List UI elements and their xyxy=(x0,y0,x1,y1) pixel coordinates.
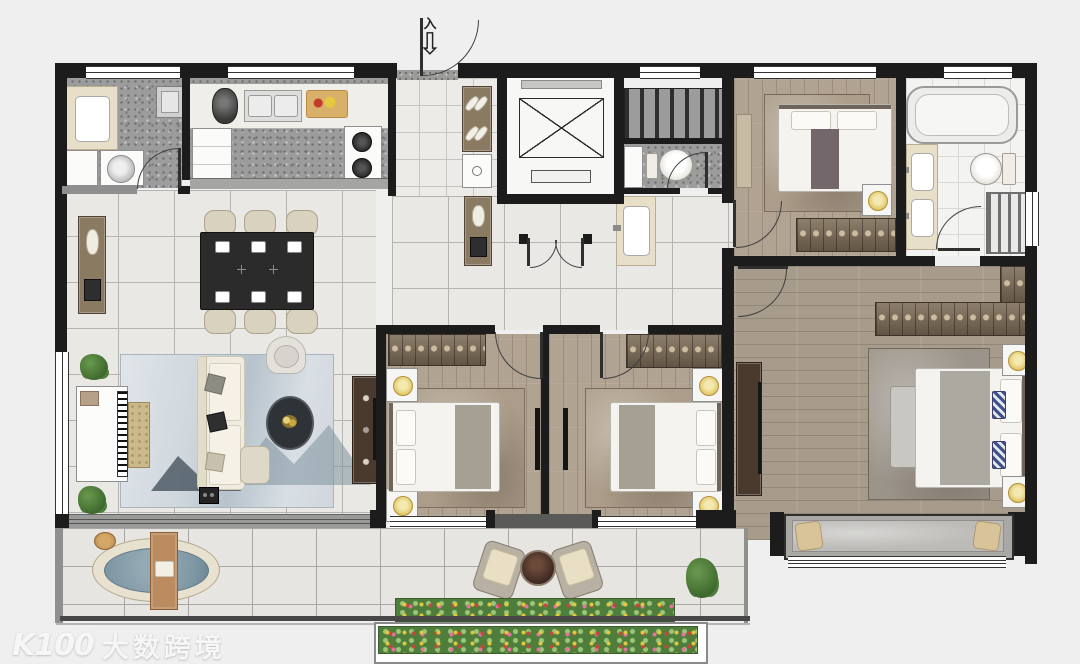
master-toilet xyxy=(970,148,1018,188)
bedroom3-tv xyxy=(563,408,568,470)
plant xyxy=(80,354,108,380)
cabinet-handle xyxy=(472,166,482,176)
vanity-basin xyxy=(911,199,934,237)
bed-runner xyxy=(455,405,491,489)
room-hallway xyxy=(392,196,734,330)
place-setting xyxy=(287,241,302,253)
balcony-table xyxy=(520,550,556,586)
sun-hat xyxy=(94,532,116,550)
bathtub xyxy=(906,86,1018,144)
laundry-cabinet xyxy=(64,150,98,186)
lounger-cushion xyxy=(558,547,595,586)
nightstand xyxy=(692,368,724,402)
coffee-maker xyxy=(212,88,238,124)
food-items xyxy=(313,96,339,110)
planter-flowers xyxy=(378,626,698,654)
master-bay-window-band xyxy=(788,556,1006,568)
wall-kitchen-foyer xyxy=(388,78,396,196)
place-setting xyxy=(251,241,266,253)
bedroom2-wardrobe xyxy=(388,334,486,366)
double-door-post xyxy=(583,234,592,244)
floorplan-canvas: 入 ⇩ K100 大数跨境 xyxy=(0,0,1080,664)
room-balcony xyxy=(60,528,748,620)
washer-drum xyxy=(107,155,135,183)
wall-master-north-left xyxy=(734,256,935,266)
room-foyer xyxy=(392,78,497,196)
window-bath-east xyxy=(1025,192,1039,246)
elevator-shaft-symbol xyxy=(519,98,604,158)
master-bed xyxy=(915,368,1027,488)
gold-flower-decor xyxy=(282,415,297,428)
pillow xyxy=(696,410,716,446)
speaker-knob xyxy=(203,493,207,497)
bed-runner xyxy=(940,371,990,485)
sideboard-box xyxy=(84,279,101,301)
wall-bedrooms-north-2 xyxy=(543,325,600,334)
accent-pillow xyxy=(992,441,1006,469)
lamp xyxy=(868,191,888,211)
mop-basin-inner xyxy=(161,91,179,113)
hall-vanity-tap xyxy=(613,225,621,231)
coffee-table xyxy=(266,396,314,450)
ottoman xyxy=(240,446,270,484)
bath-caddy xyxy=(150,532,178,610)
caddy-soap xyxy=(155,561,174,577)
window-stairwell xyxy=(640,66,700,79)
plant xyxy=(78,486,106,514)
sink-basin-right xyxy=(274,95,298,117)
wall-right-upper xyxy=(1025,78,1037,192)
hall-vanity-basin xyxy=(623,206,650,256)
room-master-bedroom xyxy=(734,266,1025,540)
pillow xyxy=(696,449,716,485)
wall-stair-left xyxy=(614,78,624,204)
pillow xyxy=(791,111,831,130)
shower-rack xyxy=(986,192,1030,254)
window-kitchen xyxy=(228,66,354,79)
lamp xyxy=(393,496,413,516)
bedroom4-wardrobe xyxy=(796,218,896,252)
kitchen-base-cabinets xyxy=(190,178,388,189)
cutting-board xyxy=(306,90,348,118)
place-setting xyxy=(287,291,302,303)
nightstand xyxy=(386,368,418,402)
table-centerpiece xyxy=(241,265,242,274)
bay-pillow xyxy=(972,520,1002,551)
wall-bedroom4-bath xyxy=(896,78,906,256)
lounger-cushion xyxy=(482,548,519,587)
foot-bench xyxy=(890,386,918,468)
hall-vanity xyxy=(616,196,656,266)
bedroom3-bed xyxy=(610,402,722,492)
lamp xyxy=(699,376,719,396)
hallway-cabinet xyxy=(464,196,492,266)
watermark-logo: K100 xyxy=(12,628,94,663)
window-living-west xyxy=(55,352,69,514)
pillow xyxy=(837,111,877,130)
wall-bedroom3-master xyxy=(722,334,734,516)
wall-wc-south-right xyxy=(708,188,722,194)
laundry-sink-counter xyxy=(66,86,118,150)
window-bedroom4 xyxy=(754,66,876,79)
room-stairwell xyxy=(624,88,724,140)
bedroom2-tv xyxy=(535,408,540,470)
master-bay-post-left xyxy=(770,512,784,556)
wall-bedrooms-north-1 xyxy=(376,325,495,334)
kitchen-double-sink xyxy=(244,90,302,122)
entry-marker: 入 ⇩ xyxy=(406,18,454,74)
double-vanity xyxy=(906,144,938,250)
wall-laundry-kitchen xyxy=(182,78,190,180)
nightstand xyxy=(862,184,892,216)
sink-basin-left xyxy=(248,95,272,117)
bay-pillow xyxy=(794,520,824,551)
master-tv xyxy=(758,382,761,474)
bedroom2-bed xyxy=(388,402,500,492)
speaker-knob xyxy=(210,493,214,497)
refrigerator xyxy=(192,128,232,184)
elevator-interior xyxy=(507,78,614,194)
place-setting xyxy=(251,291,266,303)
shoe-cabinet xyxy=(462,86,492,152)
lounger xyxy=(471,539,527,601)
headboard xyxy=(717,403,721,491)
sofa xyxy=(197,356,245,490)
table-centerpiece xyxy=(273,265,274,274)
wall-left-upper xyxy=(55,78,67,352)
piano xyxy=(76,386,128,482)
headboard xyxy=(779,105,891,109)
wc-shelf xyxy=(624,146,643,188)
sideboard xyxy=(78,216,106,314)
stove-burner-bottom xyxy=(352,158,372,178)
balcony-right-wall xyxy=(744,528,748,623)
dining-chair xyxy=(204,308,236,334)
elevator-door-band xyxy=(521,80,602,89)
wall-master-north-right xyxy=(980,256,1025,266)
balcony-railing xyxy=(60,616,750,621)
bedroom4-bed xyxy=(778,104,892,192)
bed-runner xyxy=(619,405,655,489)
pillow xyxy=(396,449,416,485)
sheet-music xyxy=(80,391,99,406)
accent-pillow xyxy=(992,391,1006,419)
armchair xyxy=(266,336,306,374)
bed-runner xyxy=(811,129,839,189)
place-setting xyxy=(215,241,230,253)
wall-bedroom4-west-lower xyxy=(722,248,734,336)
master-closet-vertical xyxy=(1000,266,1027,304)
wall-bedroom4-west-upper xyxy=(722,63,734,203)
room-elevator xyxy=(497,66,624,204)
dining-chair xyxy=(286,308,318,334)
window-laundry xyxy=(86,66,180,79)
laundry-basin xyxy=(75,96,110,142)
gas-stove xyxy=(344,126,382,184)
speaker xyxy=(199,487,219,504)
bay-cushion xyxy=(792,520,1004,552)
bathtub-inner xyxy=(915,94,1009,136)
balcony-plant xyxy=(686,558,718,598)
wall-bedrooms-north-3 xyxy=(648,325,734,334)
decor-box xyxy=(470,237,487,257)
headboard xyxy=(389,403,393,491)
stove-burner-top xyxy=(352,132,372,152)
flower-planter-box xyxy=(374,622,708,664)
dining-table xyxy=(200,232,314,310)
decor-vase xyxy=(472,205,485,227)
lounger xyxy=(549,539,605,601)
window-master-bath xyxy=(944,66,1012,79)
entry-arrow-icon: ⇩ xyxy=(406,30,454,60)
piano-bench xyxy=(128,402,150,468)
watermark-brand-text: 大数跨境 xyxy=(102,626,226,664)
elevator-slot xyxy=(531,170,591,183)
watermark: K100 大数跨境 xyxy=(12,626,226,664)
dining-chair xyxy=(244,308,276,334)
throw-pillow xyxy=(206,411,227,432)
room-dining-living xyxy=(62,190,376,516)
wall-laundry-south xyxy=(62,186,137,194)
wall-living-bedroom2 xyxy=(376,334,386,516)
piano-keys xyxy=(117,391,128,477)
armchair-seat xyxy=(274,345,299,368)
mop-basin xyxy=(156,86,184,118)
foyer-low-cabinet xyxy=(462,154,492,188)
living-sliding-door-track xyxy=(62,514,372,529)
pillow xyxy=(396,410,416,446)
toilet-tank xyxy=(646,153,658,179)
desk-ledge xyxy=(736,114,752,188)
master-closet-horizontal xyxy=(875,302,1027,336)
throw-pillow xyxy=(205,452,226,473)
master-bay-window-seat xyxy=(784,514,1014,560)
room-kitchen xyxy=(190,78,388,188)
sideboard-vase xyxy=(86,229,99,255)
place-setting xyxy=(215,291,230,303)
toilet-bowl xyxy=(970,153,1002,185)
wall-right-lower xyxy=(1025,246,1037,564)
toilet-tank xyxy=(1002,153,1016,185)
wall-stair-wc xyxy=(624,138,722,144)
lamp xyxy=(393,376,413,396)
balcony-left-wall xyxy=(55,528,63,623)
vanity-basin xyxy=(911,153,934,191)
